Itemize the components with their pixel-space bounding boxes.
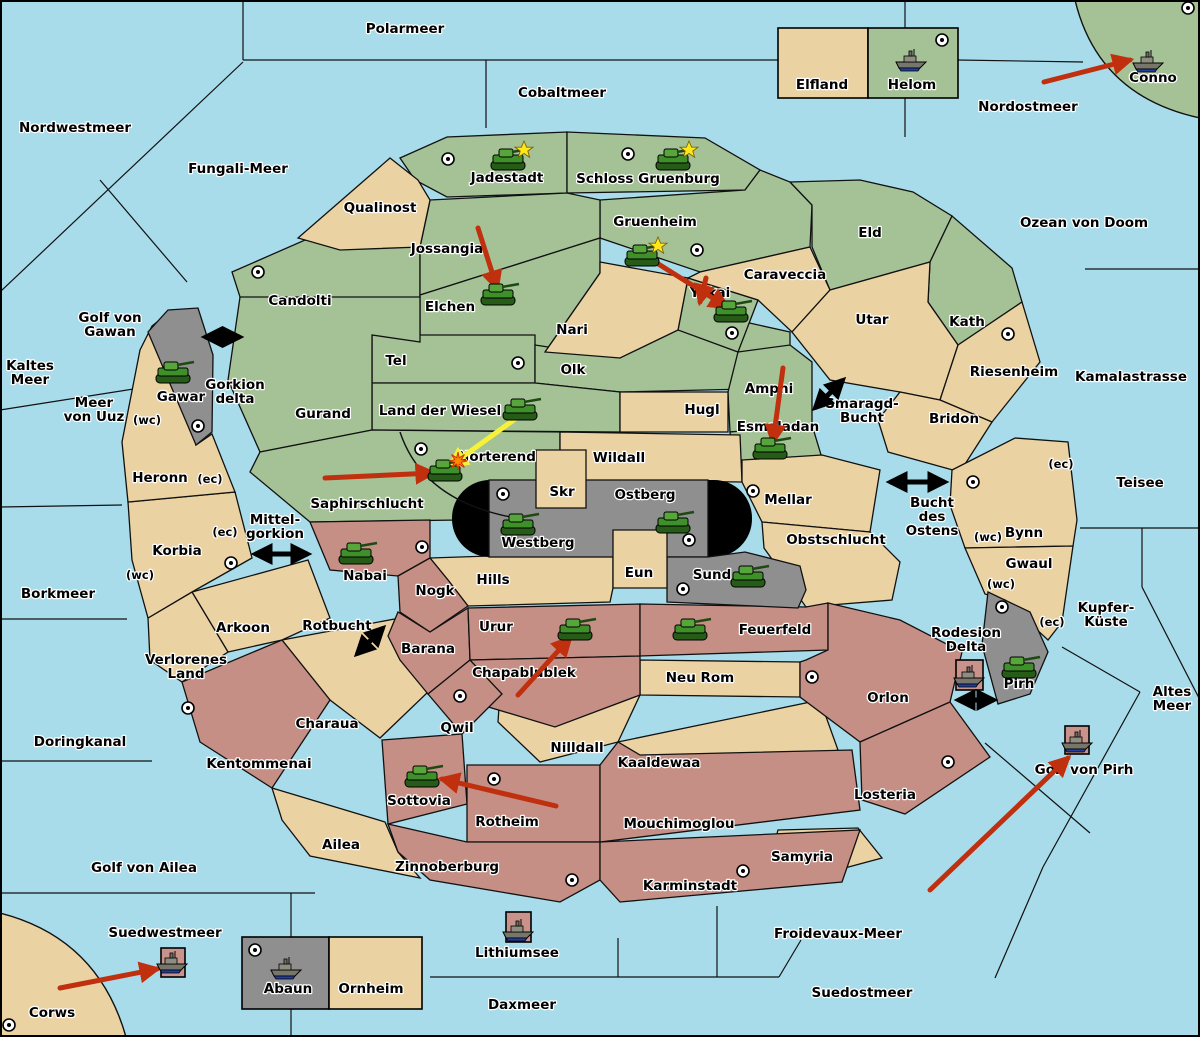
label: Urur [479, 619, 513, 635]
label: Utar [855, 312, 889, 328]
label: Sund [693, 567, 732, 583]
label: Kamalastrasse [1075, 369, 1187, 385]
label: Eld [858, 225, 882, 241]
supply-center-icon [936, 34, 948, 46]
supply-center-icon [677, 583, 689, 595]
label: Golf vonGawan [78, 310, 141, 340]
label: Corws [29, 1005, 75, 1021]
label: Ozean von Doom [1020, 215, 1148, 231]
supply-center-icon [942, 756, 954, 768]
label: Bynn [1005, 525, 1043, 541]
label: Hugl [684, 402, 719, 418]
game-map-stage: JadestadtSchloss GruenburgGruenheimEldKa… [0, 0, 1200, 1037]
label: (ec) [212, 525, 237, 539]
label: Ostberg [614, 487, 675, 503]
supply-center-icon [192, 420, 204, 432]
label: Candolti [268, 293, 331, 309]
supply-center-icon [182, 702, 194, 714]
label: Tel [385, 353, 406, 369]
supply-center-icon [488, 773, 500, 785]
supply-center-icon [416, 541, 428, 553]
label: Ornheim [338, 981, 403, 997]
label: Chapablublek [472, 665, 577, 681]
label: Mellar [764, 492, 812, 508]
label: Skr [549, 484, 575, 500]
label: Cobaltmeer [518, 85, 606, 101]
label: (wc) [987, 577, 1015, 591]
label: (wc) [126, 568, 154, 582]
supply-center-icon [683, 534, 695, 546]
supply-center-icon [691, 244, 703, 256]
label: Jadestadt [470, 170, 544, 186]
label: Sottovia [387, 793, 451, 809]
label: Neu Rom [666, 670, 735, 686]
label: Conno [1129, 70, 1177, 86]
supply-center-icon [249, 944, 261, 956]
label: Feuerfeld [739, 622, 812, 638]
label: Mouchimoglou [623, 816, 734, 832]
label: Arkoon [216, 620, 270, 636]
supply-center-icon [566, 874, 578, 886]
supply-center-icon [442, 153, 454, 165]
label: Teisee [1116, 475, 1164, 491]
label: Rotheim [475, 814, 539, 830]
supply-center-icon [622, 148, 634, 160]
label: Land der Wiesel [379, 403, 501, 419]
label: Kaaldewaa [618, 755, 701, 771]
label: Zinnoberburg [395, 859, 499, 875]
label: Caraveccia [744, 267, 826, 283]
label: Qualinost [344, 200, 417, 216]
supply-center-icon [415, 443, 427, 455]
label: Nari [556, 322, 588, 338]
supply-center-icon [737, 865, 749, 877]
supply-center-icon [996, 601, 1008, 613]
label: Suedwestmeer [108, 925, 222, 941]
supply-center-icon [1002, 328, 1014, 340]
label: Bridon [929, 411, 979, 427]
label: Charaua [295, 716, 358, 732]
label: Samyria [771, 849, 833, 865]
label: (wc) [133, 413, 161, 427]
label: Borkmeer [21, 586, 96, 602]
label: AltesMeer [1153, 684, 1192, 714]
label: Amphi [745, 381, 793, 397]
label: Obstschlucht [786, 532, 886, 548]
label: Gwaul [1006, 556, 1053, 572]
label: Nordwestmeer [19, 120, 131, 136]
supply-center-icon [512, 357, 524, 369]
label: Suedostmeer [812, 985, 913, 1001]
label: Eun [625, 565, 653, 581]
label: Karminstadt [643, 878, 738, 894]
region-wildall[interactable] [560, 432, 742, 482]
explosion-icon [449, 452, 467, 470]
label: Helom [888, 77, 936, 93]
label: Mittel-gorkion [246, 512, 304, 542]
supply-center-icon [747, 485, 759, 497]
label: Losteria [854, 787, 916, 803]
label: Lithiumsee [475, 945, 559, 961]
label: Kupfer-Küste [1078, 600, 1135, 630]
label: Westberg [501, 535, 574, 551]
label: Doringkanal [34, 734, 126, 750]
label: Nabai [343, 568, 387, 584]
label: Wildall [593, 450, 645, 466]
label: Elfland [796, 77, 848, 93]
label: (ec) [1039, 615, 1064, 629]
label: Schloss Gruenburg [576, 171, 720, 187]
supply-center-icon [967, 476, 979, 488]
supply-center-icon [252, 266, 264, 278]
label: Kath [949, 314, 985, 330]
label: Rotbucht [302, 618, 372, 634]
label: Heronn [132, 470, 188, 486]
label: KaltesMeer [6, 358, 54, 388]
label: Froidevaux-Meer [774, 926, 902, 942]
label: Qwil [440, 720, 473, 736]
label: Gruenheim [613, 214, 697, 230]
label: Nilldall [550, 740, 603, 756]
supply-center-icon [3, 1019, 15, 1031]
label: Daxmeer [488, 997, 556, 1013]
label: Nogk [415, 583, 455, 599]
label: Korbia [152, 543, 202, 559]
label: Gurand [295, 406, 351, 422]
label: Abaun [264, 981, 312, 997]
supply-center-icon [1182, 2, 1194, 14]
label: Orlon [867, 690, 909, 706]
box-ornheim[interactable] [329, 937, 422, 1009]
supply-center-icon [806, 671, 818, 683]
label: Polarmeer [366, 21, 445, 37]
label: Nordostmeer [978, 99, 1078, 115]
label: Barana [401, 641, 455, 657]
label: Riesenheim [970, 364, 1058, 380]
label: (wc) [974, 530, 1002, 544]
label: (ec) [197, 472, 222, 486]
label: Gawar [157, 389, 206, 405]
label: Fungali-Meer [188, 161, 288, 177]
label: Ailea [322, 837, 360, 853]
label: Kentommenai [206, 756, 311, 772]
supply-center-icon [497, 488, 509, 500]
label: Jossangia [410, 241, 484, 257]
label: Olk [560, 362, 586, 378]
supply-center-icon [225, 557, 237, 569]
label: Golf von Ailea [91, 860, 197, 876]
label: Saphirschlucht [310, 496, 424, 512]
supply-center-icon [726, 327, 738, 339]
label: Elchen [425, 299, 475, 315]
label: Hills [476, 572, 509, 588]
strategy-map: JadestadtSchloss GruenburgGruenheimEldKa… [0, 0, 1200, 1037]
region-rotheim[interactable] [467, 765, 600, 842]
label: (ec) [1048, 457, 1073, 471]
supply-center-icon [454, 690, 466, 702]
